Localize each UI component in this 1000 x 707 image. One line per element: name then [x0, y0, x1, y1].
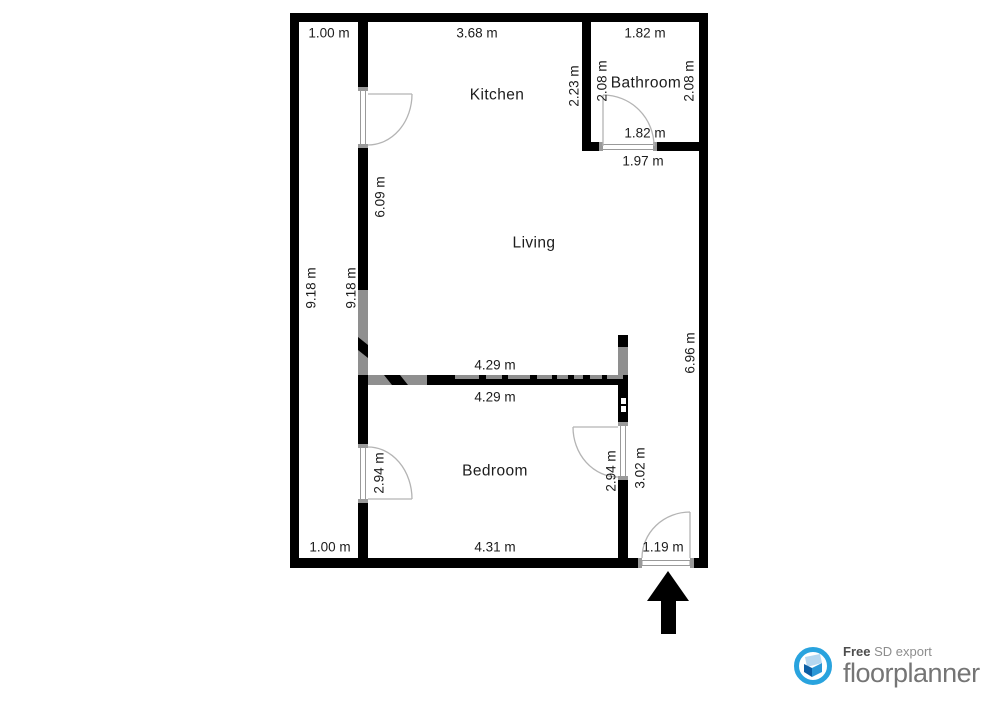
wall-right [699, 13, 708, 568]
wall-corridor-bottom [358, 500, 368, 558]
dim-kitchen-wall-height: 6.09 m [373, 176, 387, 217]
floorplan-graphics [0, 0, 1000, 707]
dim-bedroom-right-wall: 3.02 m [633, 447, 647, 488]
dim-bathroom-width-top: 1.82 m [624, 26, 665, 40]
dim-bathroom-height-right: 2.08 m [682, 60, 696, 101]
wall-corridor-upper [358, 22, 368, 90]
dim-kitchen-width: 3.68 m [456, 26, 497, 40]
threshold-kitchen-door [361, 90, 366, 145]
wall-bedroom-right-upper [618, 385, 628, 425]
floorplan-canvas: 1.00 m 3.68 m 1.82 m 2.23 m 2.08 m 2.08 … [0, 0, 1000, 707]
room-label-kitchen: Kitchen [470, 87, 525, 103]
dim-bathroom-height-left: 2.08 m [595, 60, 609, 101]
wall-bathroom-left [582, 22, 591, 142]
entrance-arrow-icon [647, 571, 689, 634]
kitchen-door-swing [368, 94, 412, 145]
dim-corridor-bottom: 1.00 m [309, 540, 350, 554]
dim-left-wall-outer: 9.18 m [304, 267, 318, 308]
dim-entrance-door: 1.19 m [642, 540, 683, 554]
dim-left-wall-inner: 9.18 m [344, 267, 358, 308]
brand-name: floorplanner [843, 660, 980, 687]
dim-corridor-top: 1.00 m [308, 26, 349, 40]
wall-bottom-left [290, 558, 640, 568]
floorplanner-logo-text: Free SD export floorplanner [843, 645, 980, 687]
floorplanner-logo: Free SD export floorplanner [790, 643, 980, 689]
export-type-label: Free SD export [843, 645, 980, 659]
wall-corridor-lower [358, 385, 368, 447]
dim-bedroom-top-width: 4.29 m [474, 390, 515, 404]
wall-left [290, 13, 299, 568]
wall-bedroom-right-lower [618, 477, 628, 558]
dim-bathroom-door-width: 1.82 m [624, 126, 665, 140]
dim-kitchen-bath-wall: 2.23 m [567, 65, 581, 106]
dim-bathroom-bottom-width: 1.97 m [622, 154, 663, 168]
wall-top [290, 13, 708, 22]
room-label-bedroom: Bedroom [462, 463, 528, 479]
threshold-bathroom-door [602, 145, 654, 150]
dim-bedroom-door-left: 2.94 m [372, 452, 386, 493]
threshold-entrance-door [642, 561, 690, 566]
threshold-bedroom-right-door [621, 425, 626, 477]
room-label-living: Living [513, 235, 556, 251]
room-label-bathroom: Bathroom [611, 75, 681, 91]
floorplanner-icon [790, 643, 836, 689]
dim-bedroom-door-right: 2.94 m [604, 450, 618, 491]
wall-bathroom-bottom-right [654, 142, 708, 151]
threshold-bedroom-left-door [361, 447, 366, 500]
free-label: Free [843, 644, 870, 659]
dim-living-width: 4.29 m [474, 358, 515, 372]
dim-bedroom-width: 4.31 m [474, 540, 515, 554]
dim-right-corridor: 6.96 m [683, 332, 697, 373]
sd-export-label: SD export [874, 644, 932, 659]
